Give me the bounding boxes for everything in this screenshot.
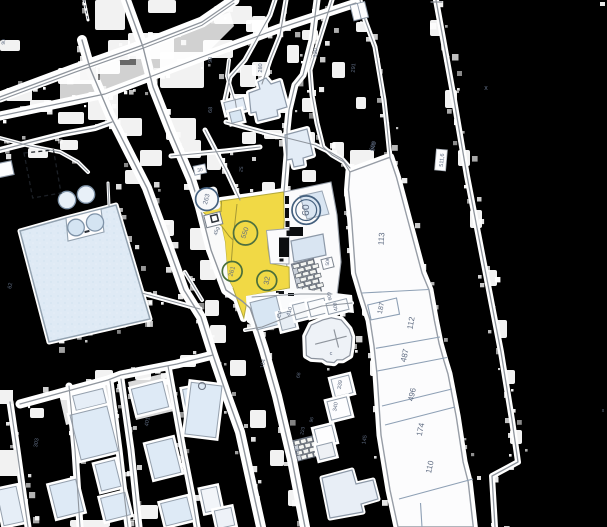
svg-text:68: 68 bbox=[208, 107, 215, 114]
svg-text:506: 506 bbox=[325, 257, 331, 266]
svg-text:32: 32 bbox=[262, 276, 272, 286]
svg-text:x: x bbox=[484, 85, 488, 92]
svg-text:90: 90 bbox=[1, 39, 7, 45]
svg-text:60: 60 bbox=[300, 204, 312, 216]
svg-text:113: 113 bbox=[376, 231, 386, 245]
svg-text:291: 291 bbox=[351, 63, 358, 73]
svg-text:62: 62 bbox=[7, 282, 14, 289]
svg-text:511,6: 511,6 bbox=[439, 153, 446, 167]
svg-text:130: 130 bbox=[313, 48, 320, 58]
svg-text:280: 280 bbox=[258, 63, 264, 72]
svg-text:c: c bbox=[330, 351, 333, 357]
svg-text:90: 90 bbox=[208, 57, 215, 64]
